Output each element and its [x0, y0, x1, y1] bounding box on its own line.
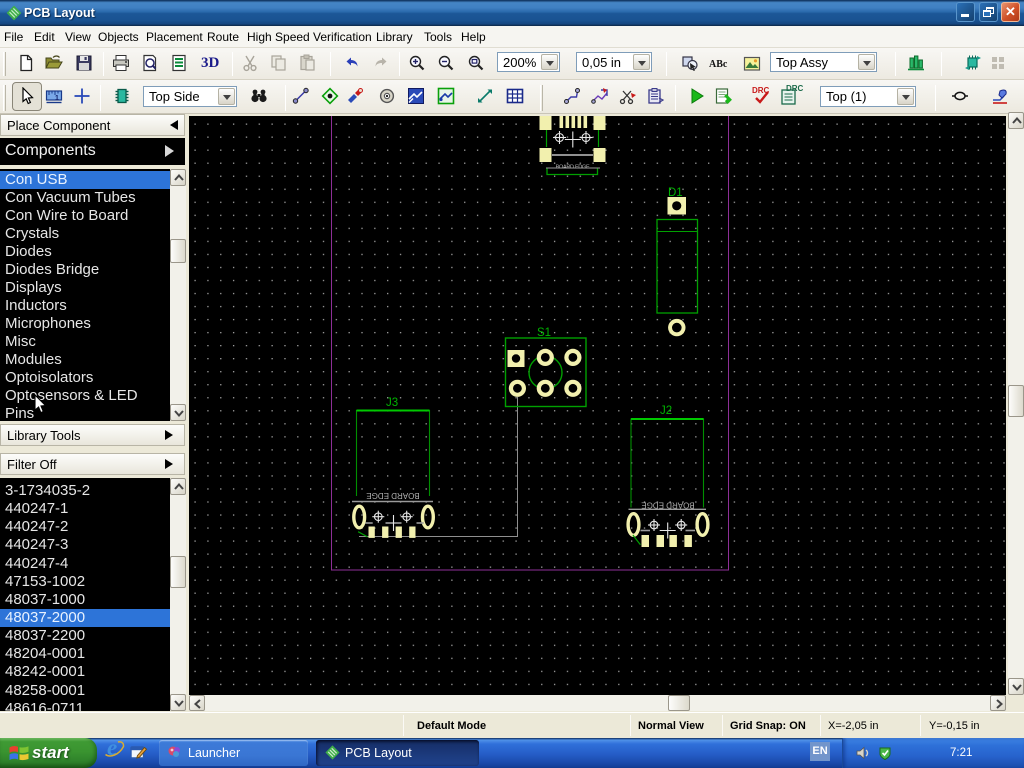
svg-text:J3: J3 [386, 397, 398, 409]
svg-text:BOARD EDGE: BOARD EDGE [641, 501, 694, 510]
svg-text:J2: J2 [660, 405, 672, 417]
svg-text:BOARD EDGE: BOARD EDGE [366, 491, 419, 500]
svg-text:1: 1 [55, 95, 59, 102]
svg-text:S1: S1 [537, 327, 551, 339]
